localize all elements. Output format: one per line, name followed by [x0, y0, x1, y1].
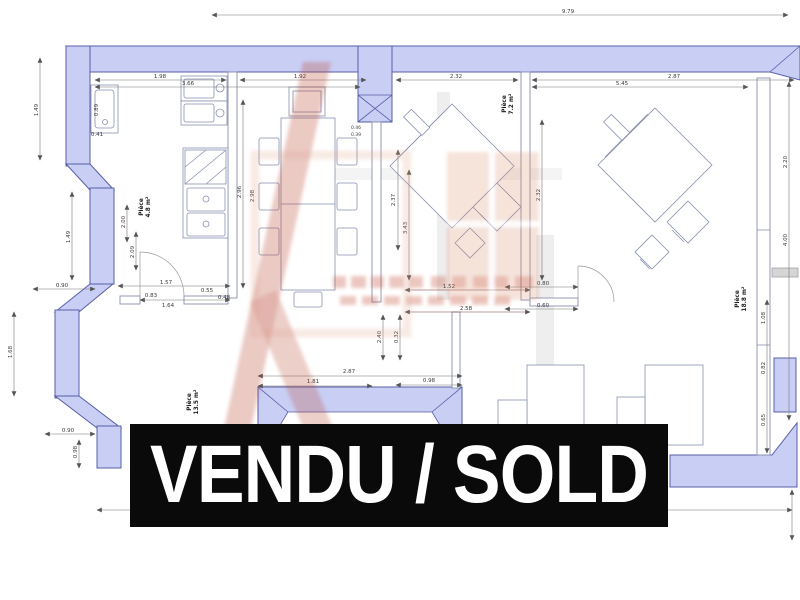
dimension-label: 9.79 — [562, 9, 575, 15]
dimension-label: 1.64 — [162, 303, 175, 309]
dimension-label: 1.49 — [66, 230, 72, 243]
room-area-main: 13.5 m² — [193, 389, 200, 414]
dimension-label: 0.82 — [761, 362, 767, 374]
room-area-bedroom: 18.8 m² — [741, 286, 748, 311]
room-label-kitchen: Pièce — [138, 198, 145, 216]
hall-wall-lower — [452, 312, 460, 388]
dimension-label: 2.87 — [343, 369, 356, 375]
left-wall-bottom — [97, 426, 121, 468]
dining-living-wall — [372, 122, 381, 302]
room-area-living: 7.2 m² — [508, 93, 515, 114]
dimension-label: 3.66 — [182, 81, 195, 87]
radiator — [772, 268, 798, 277]
kitchen-bottom-wall-left — [120, 296, 140, 304]
dimension-label: 5.45 — [616, 81, 629, 87]
left-wall-lower — [55, 310, 79, 398]
dimension-label: 2.87 — [668, 74, 681, 80]
sold-banner: VENDU / SOLD — [130, 424, 668, 527]
right-wall-block — [774, 358, 796, 412]
kitchen-counter — [183, 148, 228, 238]
dimension-label: 2.96 — [237, 185, 243, 198]
dimension-label: 4.00 — [783, 233, 789, 246]
dimension-label: 2.58 — [460, 306, 473, 312]
dimension-label: 1.49 — [34, 103, 40, 116]
room-label-bedroom: Pièce — [734, 290, 741, 308]
dimension-label: 0.90 — [62, 428, 75, 434]
dimension-label: 2.20 — [783, 155, 789, 168]
room-label-living: Pièce — [501, 95, 508, 113]
room-label-main: Pièce — [186, 393, 193, 411]
dimension-label: 0.65 — [761, 413, 767, 426]
dimension-label: 2.00 — [121, 215, 127, 228]
dimension-label: 1.68 — [8, 345, 14, 358]
dimension-label: 0.48 — [218, 295, 231, 301]
dimension-label: 0.89 — [94, 103, 100, 116]
right-wall — [757, 78, 770, 455]
dimension-label: 0.60 — [537, 303, 550, 309]
dimension-label: 2.37 — [391, 193, 397, 206]
dimension-label: 1.57 — [160, 280, 173, 286]
dimension-label: 0.41 — [91, 132, 103, 138]
kitchen-dining-wall — [228, 72, 237, 298]
room-area-kitchen: 4.8 m² — [145, 196, 152, 217]
dimension-label: 0.90 — [56, 283, 69, 289]
dimension-label: 0.98 — [423, 378, 436, 384]
left-wall-upper — [66, 46, 90, 166]
dimension-label: 1.98 — [154, 74, 167, 80]
dimension-label: 1.08 — [761, 311, 767, 324]
dimension-label: 0.46 — [351, 125, 361, 131]
dimension-label: 0.98 — [73, 445, 79, 458]
sold-banner-text: VENDU / SOLD — [150, 429, 648, 520]
dimension-label: 0.55 — [201, 288, 214, 294]
left-wall-mid — [90, 188, 114, 284]
dimension-label: 2.09 — [130, 245, 136, 258]
center-pillar — [358, 46, 392, 122]
floor-plan: 9.79 1.98 3.66 1.92 2.32 5.45 2.87 1.49 … — [0, 0, 800, 600]
dimension-label: 0.83 — [145, 293, 158, 299]
dimension-label: 2.32 — [450, 74, 462, 80]
dimension-label: 0.39 — [351, 132, 361, 138]
